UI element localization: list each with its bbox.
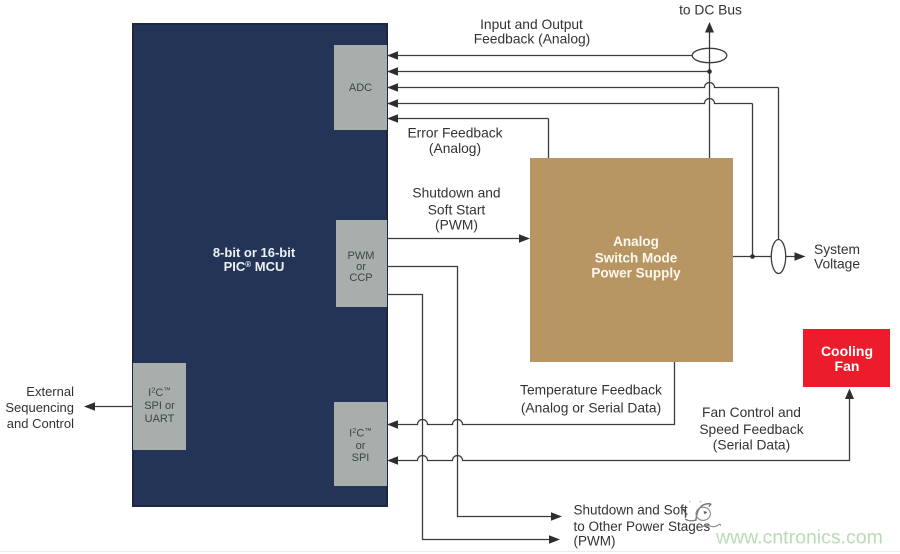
svg-text:and Control: and Control (7, 416, 74, 431)
svg-text:Shutdown and: Shutdown and (412, 186, 500, 201)
svg-text:Switch Mode: Switch Mode (595, 251, 678, 266)
svg-text:Soft Start: Soft Start (428, 203, 486, 218)
svg-text:ADC: ADC (349, 82, 372, 94)
svg-text:Power Supply: Power Supply (591, 266, 681, 281)
svg-text:(PWM): (PWM) (574, 534, 616, 549)
svg-text:External: External (26, 384, 74, 399)
svg-text:Fan Control and: Fan Control and (702, 405, 801, 420)
svg-text:CCP: CCP (349, 272, 372, 284)
svg-text:Shutdown and Soft: Shutdown and Soft (574, 503, 688, 518)
svg-text:Analog: Analog (613, 234, 659, 249)
svg-text:Feedback (Analog): Feedback (Analog) (474, 32, 591, 47)
svg-text:to DC Bus: to DC Bus (679, 3, 742, 18)
svg-text:(Analog): (Analog) (429, 141, 481, 156)
svg-text:Speed Feedback: Speed Feedback (699, 422, 803, 437)
svg-text:SPI or: SPI or (144, 400, 175, 412)
svg-text:Sequencing: Sequencing (5, 400, 74, 415)
svg-text:Voltage: Voltage (814, 257, 860, 272)
svg-text:SPI: SPI (352, 452, 370, 464)
svg-text:Fan: Fan (835, 358, 860, 374)
svg-text:UART: UART (145, 413, 175, 425)
svg-text:Cooling: Cooling (821, 343, 873, 359)
svg-text:PIC® MCU: PIC® MCU (224, 259, 285, 274)
svg-text:System: System (814, 242, 860, 257)
svg-text:Error Feedback: Error Feedback (407, 126, 502, 141)
svg-text:(Serial Data): (Serial Data) (713, 438, 790, 453)
svg-text:Input and Output: Input and Output (480, 17, 583, 32)
svg-text:(PWM): (PWM) (435, 218, 478, 233)
svg-text:www.cntronics.com: www.cntronics.com (715, 527, 883, 549)
svg-text:Temperature Feedback: Temperature Feedback (520, 383, 662, 398)
svg-text:or: or (356, 440, 366, 452)
svg-text:8-bit or 16-bit: 8-bit or 16-bit (213, 245, 296, 260)
svg-text:(Analog or Serial Data): (Analog or Serial Data) (521, 401, 661, 416)
